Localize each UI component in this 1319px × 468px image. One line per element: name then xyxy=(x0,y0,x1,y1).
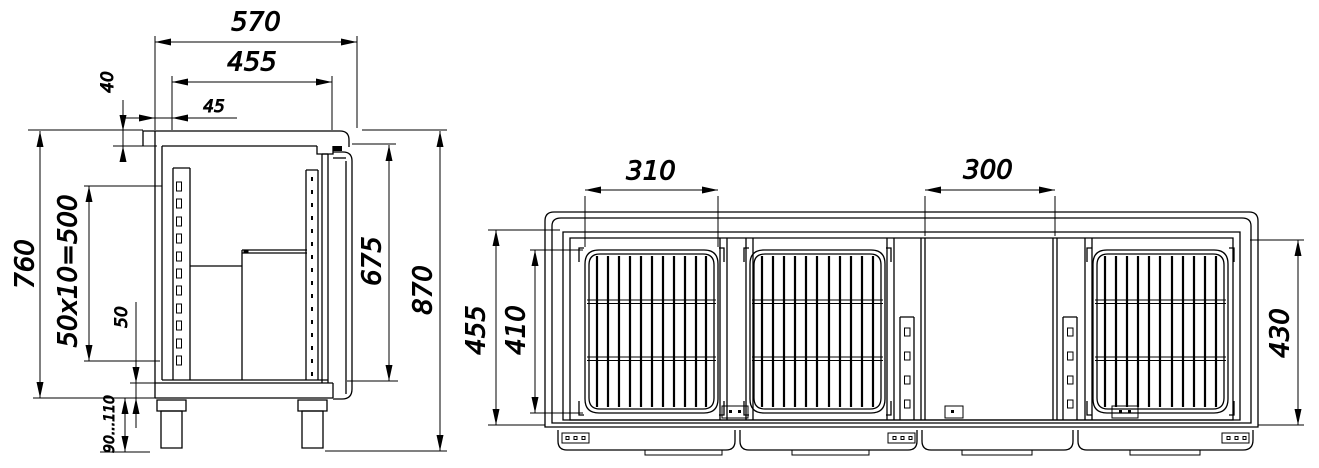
drawing-canvas: 570 455 40 45 760 50x10=500 xyxy=(0,0,1319,468)
dim-label-basket-width: 310 xyxy=(626,157,676,187)
dim-label-front-offset: 45 xyxy=(203,97,225,117)
dim-label-basket-height: 410 xyxy=(502,305,532,355)
dim-label-right-opening-height: 430 xyxy=(1266,308,1296,358)
dim-label-case-height: 760 xyxy=(11,239,41,289)
dim-leg-range: 90...110 xyxy=(102,395,129,453)
dim-label-plinth-height: 50 xyxy=(112,306,132,328)
dim-label-front-interior-height: 455 xyxy=(462,305,492,355)
dim-label-overall-depth: 570 xyxy=(231,8,281,38)
dim-label-interior-height: 675 xyxy=(358,236,388,286)
dim-label-opening-width: 300 xyxy=(963,156,1013,186)
hinge-mark xyxy=(333,146,342,151)
dim-label-overall-height: 870 xyxy=(409,265,439,315)
dim-label-top-thickness: 40 xyxy=(98,71,118,93)
technical-drawing-page: 570 455 40 45 760 50x10=500 xyxy=(0,0,1319,468)
dim-label-rail-pitch: 50x10=500 xyxy=(54,195,84,348)
dim-label-leg-range: 90...110 xyxy=(102,395,118,453)
dim-label-interior-depth: 455 xyxy=(227,48,277,78)
